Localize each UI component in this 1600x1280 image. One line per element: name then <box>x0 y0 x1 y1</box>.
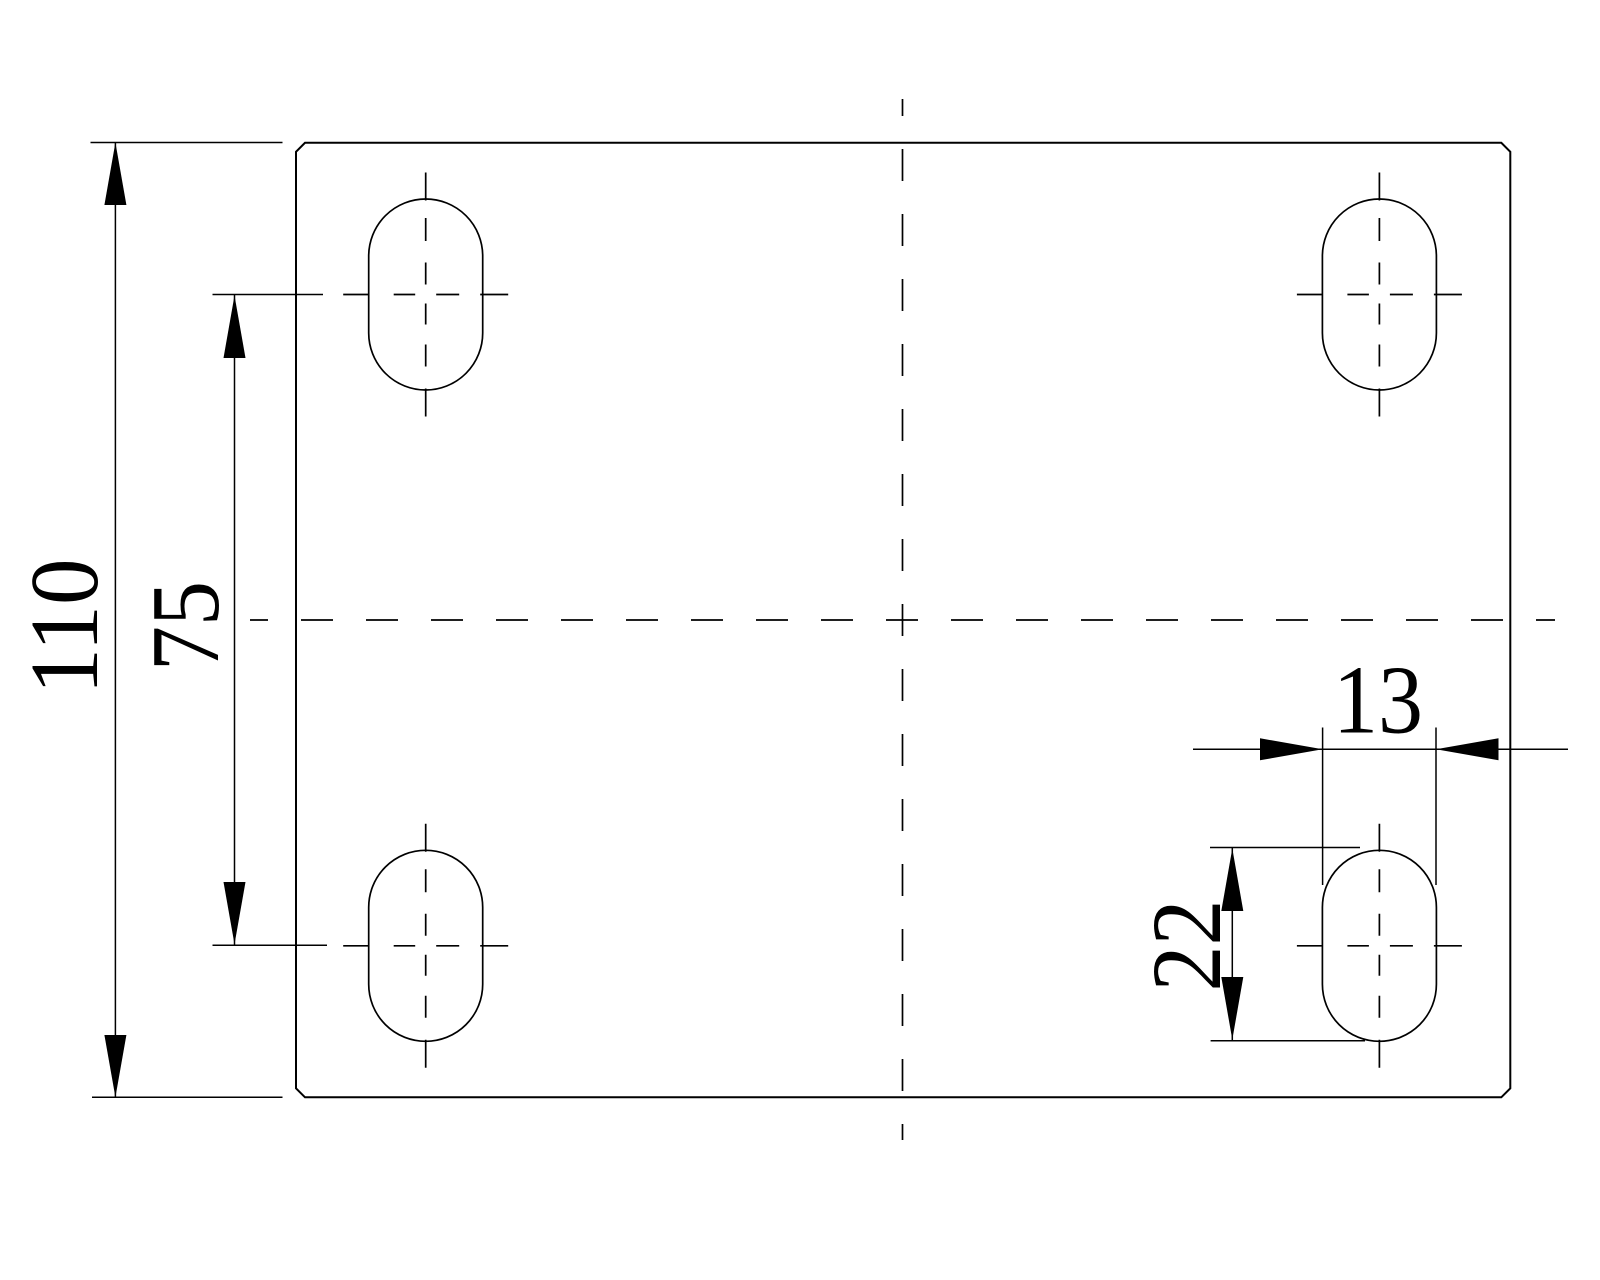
svg-text:110: 110 <box>11 559 119 695</box>
svg-text:22: 22 <box>1131 900 1242 992</box>
svg-text:75: 75 <box>132 581 240 671</box>
svg-text:13: 13 <box>1333 647 1423 755</box>
